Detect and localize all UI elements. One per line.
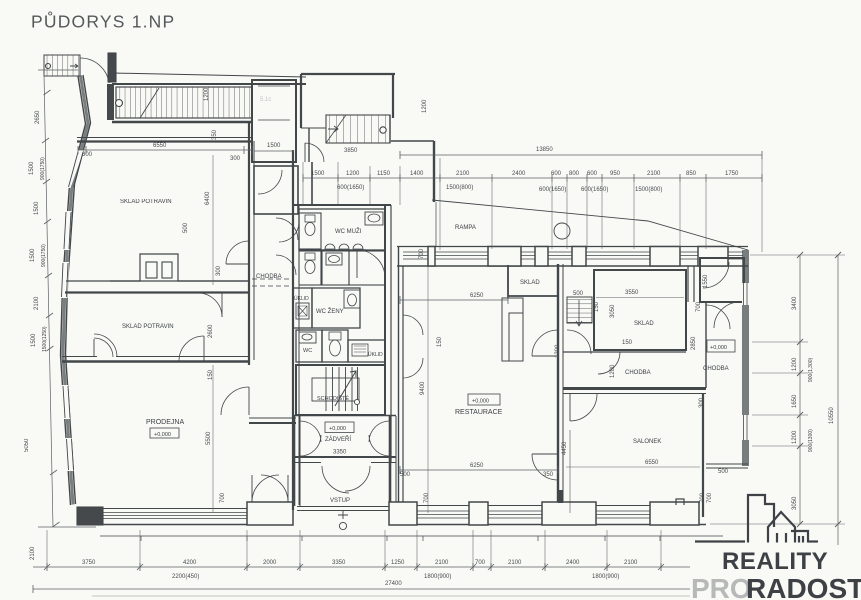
svg-text:PRO: PRO xyxy=(691,573,752,600)
svg-text:1500(800): 1500(800) xyxy=(635,187,662,193)
svg-text:350: 350 xyxy=(543,472,554,478)
svg-text:1500: 1500 xyxy=(34,201,40,215)
svg-text:1500: 1500 xyxy=(267,143,281,149)
svg-text:1500(1250): 1500(1250) xyxy=(42,326,48,352)
svg-text:2650: 2650 xyxy=(35,110,41,124)
svg-text:3350: 3350 xyxy=(333,450,347,456)
svg-text:1200: 1200 xyxy=(204,87,210,101)
svg-text:600(1650): 600(1650) xyxy=(539,187,566,193)
svg-text:350: 350 xyxy=(212,129,218,140)
svg-text:SKLAD: SKLAD xyxy=(634,321,654,327)
svg-text:1500: 1500 xyxy=(31,333,37,347)
svg-text:300: 300 xyxy=(82,152,93,158)
svg-text:2100: 2100 xyxy=(435,560,449,566)
svg-text:RADOST: RADOST xyxy=(746,573,861,600)
svg-text:500: 500 xyxy=(183,222,189,233)
svg-text:2600: 2600 xyxy=(208,324,214,338)
svg-text:SALONEK: SALONEK xyxy=(633,439,661,445)
svg-text:+0,000: +0,000 xyxy=(329,426,346,432)
svg-text:700: 700 xyxy=(424,492,430,503)
svg-text:600(1650): 600(1650) xyxy=(337,185,364,191)
svg-text:2000: 2000 xyxy=(263,560,277,566)
svg-text:2100: 2100 xyxy=(624,560,638,566)
svg-text:2100: 2100 xyxy=(456,171,470,177)
svg-text:2200(450): 2200(450) xyxy=(172,574,199,580)
svg-text:150: 150 xyxy=(208,369,214,380)
svg-text:3400: 3400 xyxy=(792,296,798,310)
svg-text:+0,000: +0,000 xyxy=(154,432,171,438)
svg-text:2400: 2400 xyxy=(512,171,526,177)
svg-text:900(1750): 900(1750) xyxy=(40,157,46,180)
svg-text:SKLAD POTRAVIN: SKLAD POTRAVIN xyxy=(120,199,172,205)
svg-text:1150: 1150 xyxy=(377,171,391,177)
svg-text:3050: 3050 xyxy=(610,304,616,318)
svg-text:2100: 2100 xyxy=(508,560,522,566)
svg-text:700: 700 xyxy=(419,248,425,259)
svg-text:500: 500 xyxy=(718,469,729,475)
svg-text:3550: 3550 xyxy=(625,290,639,296)
svg-text:1200: 1200 xyxy=(610,364,616,378)
svg-text:VSTUP: VSTUP xyxy=(330,498,350,504)
svg-text:ÚKLID: ÚKLID xyxy=(294,295,309,302)
svg-text:150: 150 xyxy=(594,301,600,312)
svg-text:1200: 1200 xyxy=(555,344,561,358)
svg-text:WC MUŽI: WC MUŽI xyxy=(335,227,362,235)
svg-text:6550: 6550 xyxy=(153,143,167,149)
svg-text:900(1750): 900(1750) xyxy=(41,244,47,267)
svg-text:500: 500 xyxy=(573,291,584,297)
svg-text:6550: 6550 xyxy=(645,460,659,466)
svg-text:600: 600 xyxy=(587,171,598,177)
svg-text:2850: 2850 xyxy=(691,336,697,350)
svg-text:2100: 2100 xyxy=(30,546,36,560)
svg-text:1250: 1250 xyxy=(391,560,405,566)
svg-text:2400: 2400 xyxy=(566,560,580,566)
svg-text:2100: 2100 xyxy=(647,171,661,177)
svg-text:2100: 2100 xyxy=(34,296,40,310)
svg-text:150: 150 xyxy=(622,340,633,346)
svg-text:1800(900): 1800(900) xyxy=(592,574,619,580)
svg-text:1200: 1200 xyxy=(422,99,428,113)
svg-text:700: 700 xyxy=(696,301,702,312)
svg-text:900(1,300): 900(1,300) xyxy=(808,357,814,382)
svg-text:1500: 1500 xyxy=(311,171,325,177)
svg-text:3050: 3050 xyxy=(792,496,798,510)
svg-text:600(1650): 600(1650) xyxy=(581,187,608,193)
svg-text:9400: 9400 xyxy=(420,381,426,395)
svg-text:3850: 3850 xyxy=(344,148,358,154)
svg-text:150: 150 xyxy=(437,336,443,347)
svg-text:700: 700 xyxy=(220,492,226,503)
svg-text:950: 950 xyxy=(610,171,621,177)
svg-text:800: 800 xyxy=(569,171,580,177)
svg-text:300: 300 xyxy=(699,397,705,408)
svg-text:5.1c: 5.1c xyxy=(260,97,271,103)
svg-text:1750: 1750 xyxy=(725,171,739,177)
svg-text:1550: 1550 xyxy=(703,274,709,288)
svg-text:5500: 5500 xyxy=(206,431,212,445)
svg-text:27400: 27400 xyxy=(385,581,402,587)
svg-text:WC: WC xyxy=(303,348,312,354)
svg-text:1500: 1500 xyxy=(30,248,36,262)
svg-text:RESTAURACE: RESTAURACE xyxy=(455,409,503,416)
svg-text:700: 700 xyxy=(700,492,706,503)
svg-text:PRODEJNA: PRODEJNA xyxy=(146,419,184,426)
svg-text:3350: 3350 xyxy=(332,560,346,566)
svg-text:REALITY: REALITY xyxy=(722,548,828,575)
svg-text:CHODBA: CHODBA xyxy=(703,366,729,372)
svg-text:500: 500 xyxy=(400,472,411,478)
svg-text:RAMPA: RAMPA xyxy=(455,225,476,231)
svg-text:WC ŽENY: WC ŽENY xyxy=(316,307,344,315)
svg-text:+0,000: +0,000 xyxy=(472,399,489,405)
svg-text:1500: 1500 xyxy=(29,161,35,175)
svg-text:700: 700 xyxy=(475,560,486,566)
svg-text:600: 600 xyxy=(551,171,562,177)
svg-text:1650: 1650 xyxy=(792,394,798,408)
svg-text:13850: 13850 xyxy=(536,147,553,153)
svg-text:700: 700 xyxy=(707,492,713,503)
svg-text:3750: 3750 xyxy=(82,560,96,566)
svg-text:SKLAD POTRAVIN: SKLAD POTRAVIN xyxy=(122,324,174,330)
svg-text:SKLAD: SKLAD xyxy=(520,280,540,286)
svg-text:6250: 6250 xyxy=(470,293,484,299)
svg-text:850: 850 xyxy=(686,171,697,177)
svg-text:1200: 1200 xyxy=(792,430,798,444)
svg-text:SCHODIŠTĚ: SCHODIŠTĚ xyxy=(317,394,349,402)
svg-text:10550: 10550 xyxy=(829,407,835,424)
svg-text:4200: 4200 xyxy=(183,560,197,566)
svg-text:CHODBA: CHODBA xyxy=(256,274,282,280)
svg-text:CHODBA: CHODBA xyxy=(625,370,651,376)
svg-text:1800(900): 1800(900) xyxy=(424,574,451,580)
svg-text:ÚKLID: ÚKLID xyxy=(368,351,383,358)
svg-text:PŮDORYS 1.NP: PŮDORYS 1.NP xyxy=(31,11,175,32)
svg-text:6250: 6250 xyxy=(470,463,484,469)
svg-text:1400: 1400 xyxy=(410,171,424,177)
svg-text:5050: 5050 xyxy=(24,438,30,452)
svg-text:1200: 1200 xyxy=(346,171,360,177)
svg-text:4450: 4450 xyxy=(562,441,568,455)
svg-text:300: 300 xyxy=(230,156,241,162)
svg-text:1200: 1200 xyxy=(792,357,798,371)
svg-text:1500(800): 1500(800) xyxy=(446,185,473,191)
svg-text:+0,000: +0,000 xyxy=(710,345,727,351)
svg-text:6400: 6400 xyxy=(205,191,211,205)
svg-text:ZÁDVEŘÍ: ZÁDVEŘÍ xyxy=(325,435,351,443)
svg-text:300: 300 xyxy=(216,265,222,276)
svg-text:900(1300): 900(1300) xyxy=(808,429,814,452)
